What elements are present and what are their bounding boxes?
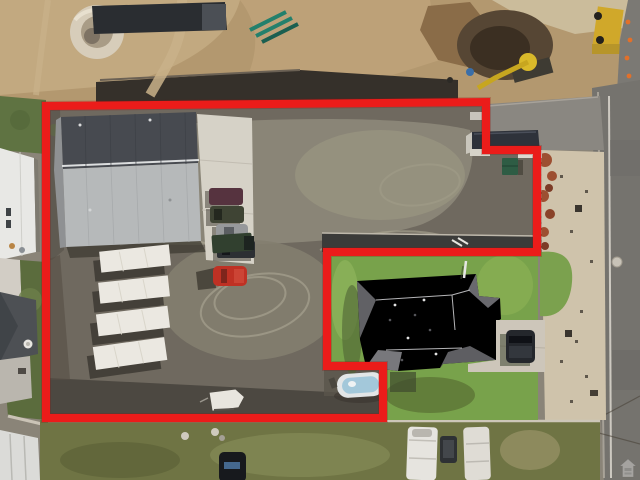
south-strip [40, 420, 600, 480]
dirt-patch [500, 430, 560, 470]
roof-vent-center [26, 342, 30, 346]
roof-vent [149, 119, 152, 122]
trailer-axle [214, 409, 234, 410]
cargo-van [440, 436, 457, 463]
logo-detail [625, 468, 632, 471]
truck-cab [202, 4, 226, 30]
neighbor-house-roof [0, 148, 36, 260]
boat-seat [348, 381, 356, 387]
debris [181, 432, 189, 440]
boat-interior [341, 376, 379, 395]
skylight [6, 220, 11, 228]
debris [211, 428, 219, 436]
pavement-patch [610, 140, 640, 176]
car-glass [214, 209, 222, 220]
post [565, 330, 572, 337]
parked-car-dark [219, 452, 246, 480]
yard-item [19, 247, 25, 253]
rv-camper [463, 427, 491, 480]
loader-wheel [594, 12, 602, 20]
gravel-light-patch [295, 130, 465, 220]
rv-camper [406, 426, 438, 480]
green-flatbed-truck [211, 233, 254, 254]
post [590, 390, 598, 396]
loader-wheel [596, 36, 604, 44]
roof-slope-light [63, 163, 201, 247]
van-roof-rack [443, 440, 454, 458]
pavement-patch [612, 350, 640, 390]
construction-zone [0, 0, 640, 110]
patio [0, 356, 32, 404]
parked-car [209, 188, 243, 205]
logo-detail [625, 473, 632, 475]
backyard-patio [390, 372, 416, 392]
dumpster-shadow [518, 160, 523, 175]
worker-equipment [466, 68, 474, 76]
windshield [509, 336, 532, 343]
post [575, 205, 582, 212]
suv-roof [509, 346, 532, 358]
wheel-loader [592, 6, 624, 54]
roof-vent [89, 209, 92, 212]
aerial-photo [0, 0, 640, 480]
yard-item [9, 243, 15, 249]
roof-vent [79, 124, 82, 127]
grass-shade [10, 110, 30, 130]
car-glass [221, 269, 227, 283]
neighbor-house-roof [0, 430, 40, 480]
worker-equipment [447, 77, 453, 83]
weed-dark [60, 442, 180, 478]
windshield [224, 462, 240, 469]
loader-bucket [592, 44, 622, 54]
rv-cab [412, 429, 432, 437]
manhole [612, 257, 622, 267]
driveway-suv [500, 330, 535, 366]
roof-vent [169, 199, 172, 202]
debris [219, 435, 225, 441]
skylight [6, 208, 11, 216]
car-hood [234, 269, 244, 283]
dumpster [502, 158, 523, 175]
patio-item [18, 368, 26, 374]
truck-cab [244, 236, 254, 250]
